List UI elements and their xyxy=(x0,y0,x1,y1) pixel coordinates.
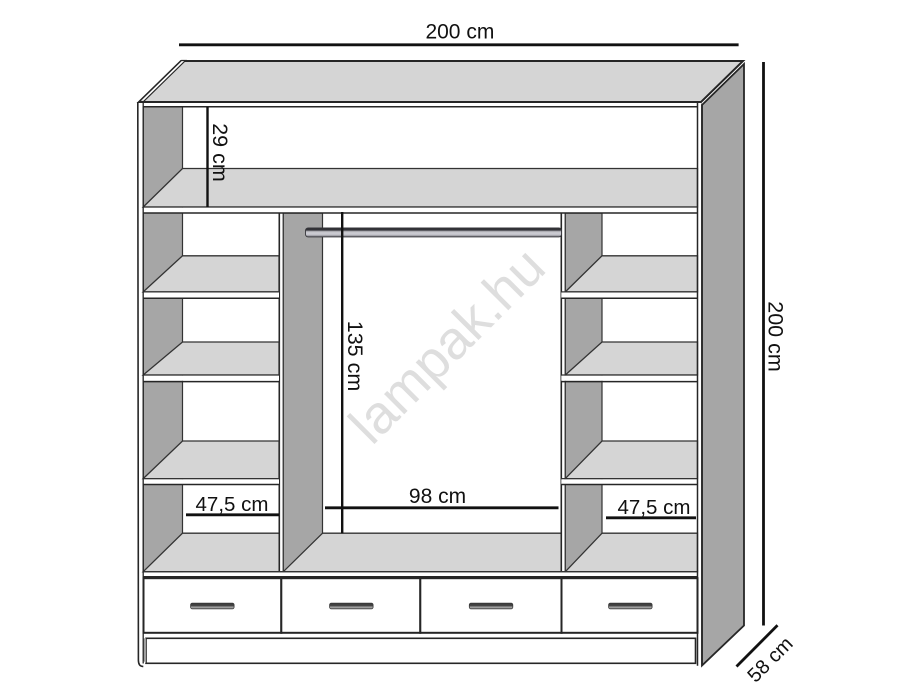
svg-text:200 cm: 200 cm xyxy=(425,21,494,44)
svg-text:98 cm: 98 cm xyxy=(409,485,466,508)
svg-text:47,5 cm: 47,5 cm xyxy=(618,496,691,519)
svg-text:200 cm: 200 cm xyxy=(764,301,788,372)
svg-text:29 cm: 29 cm xyxy=(208,123,232,182)
svg-text:135 cm: 135 cm xyxy=(343,321,367,392)
svg-text:47,5 cm: 47,5 cm xyxy=(196,493,269,516)
